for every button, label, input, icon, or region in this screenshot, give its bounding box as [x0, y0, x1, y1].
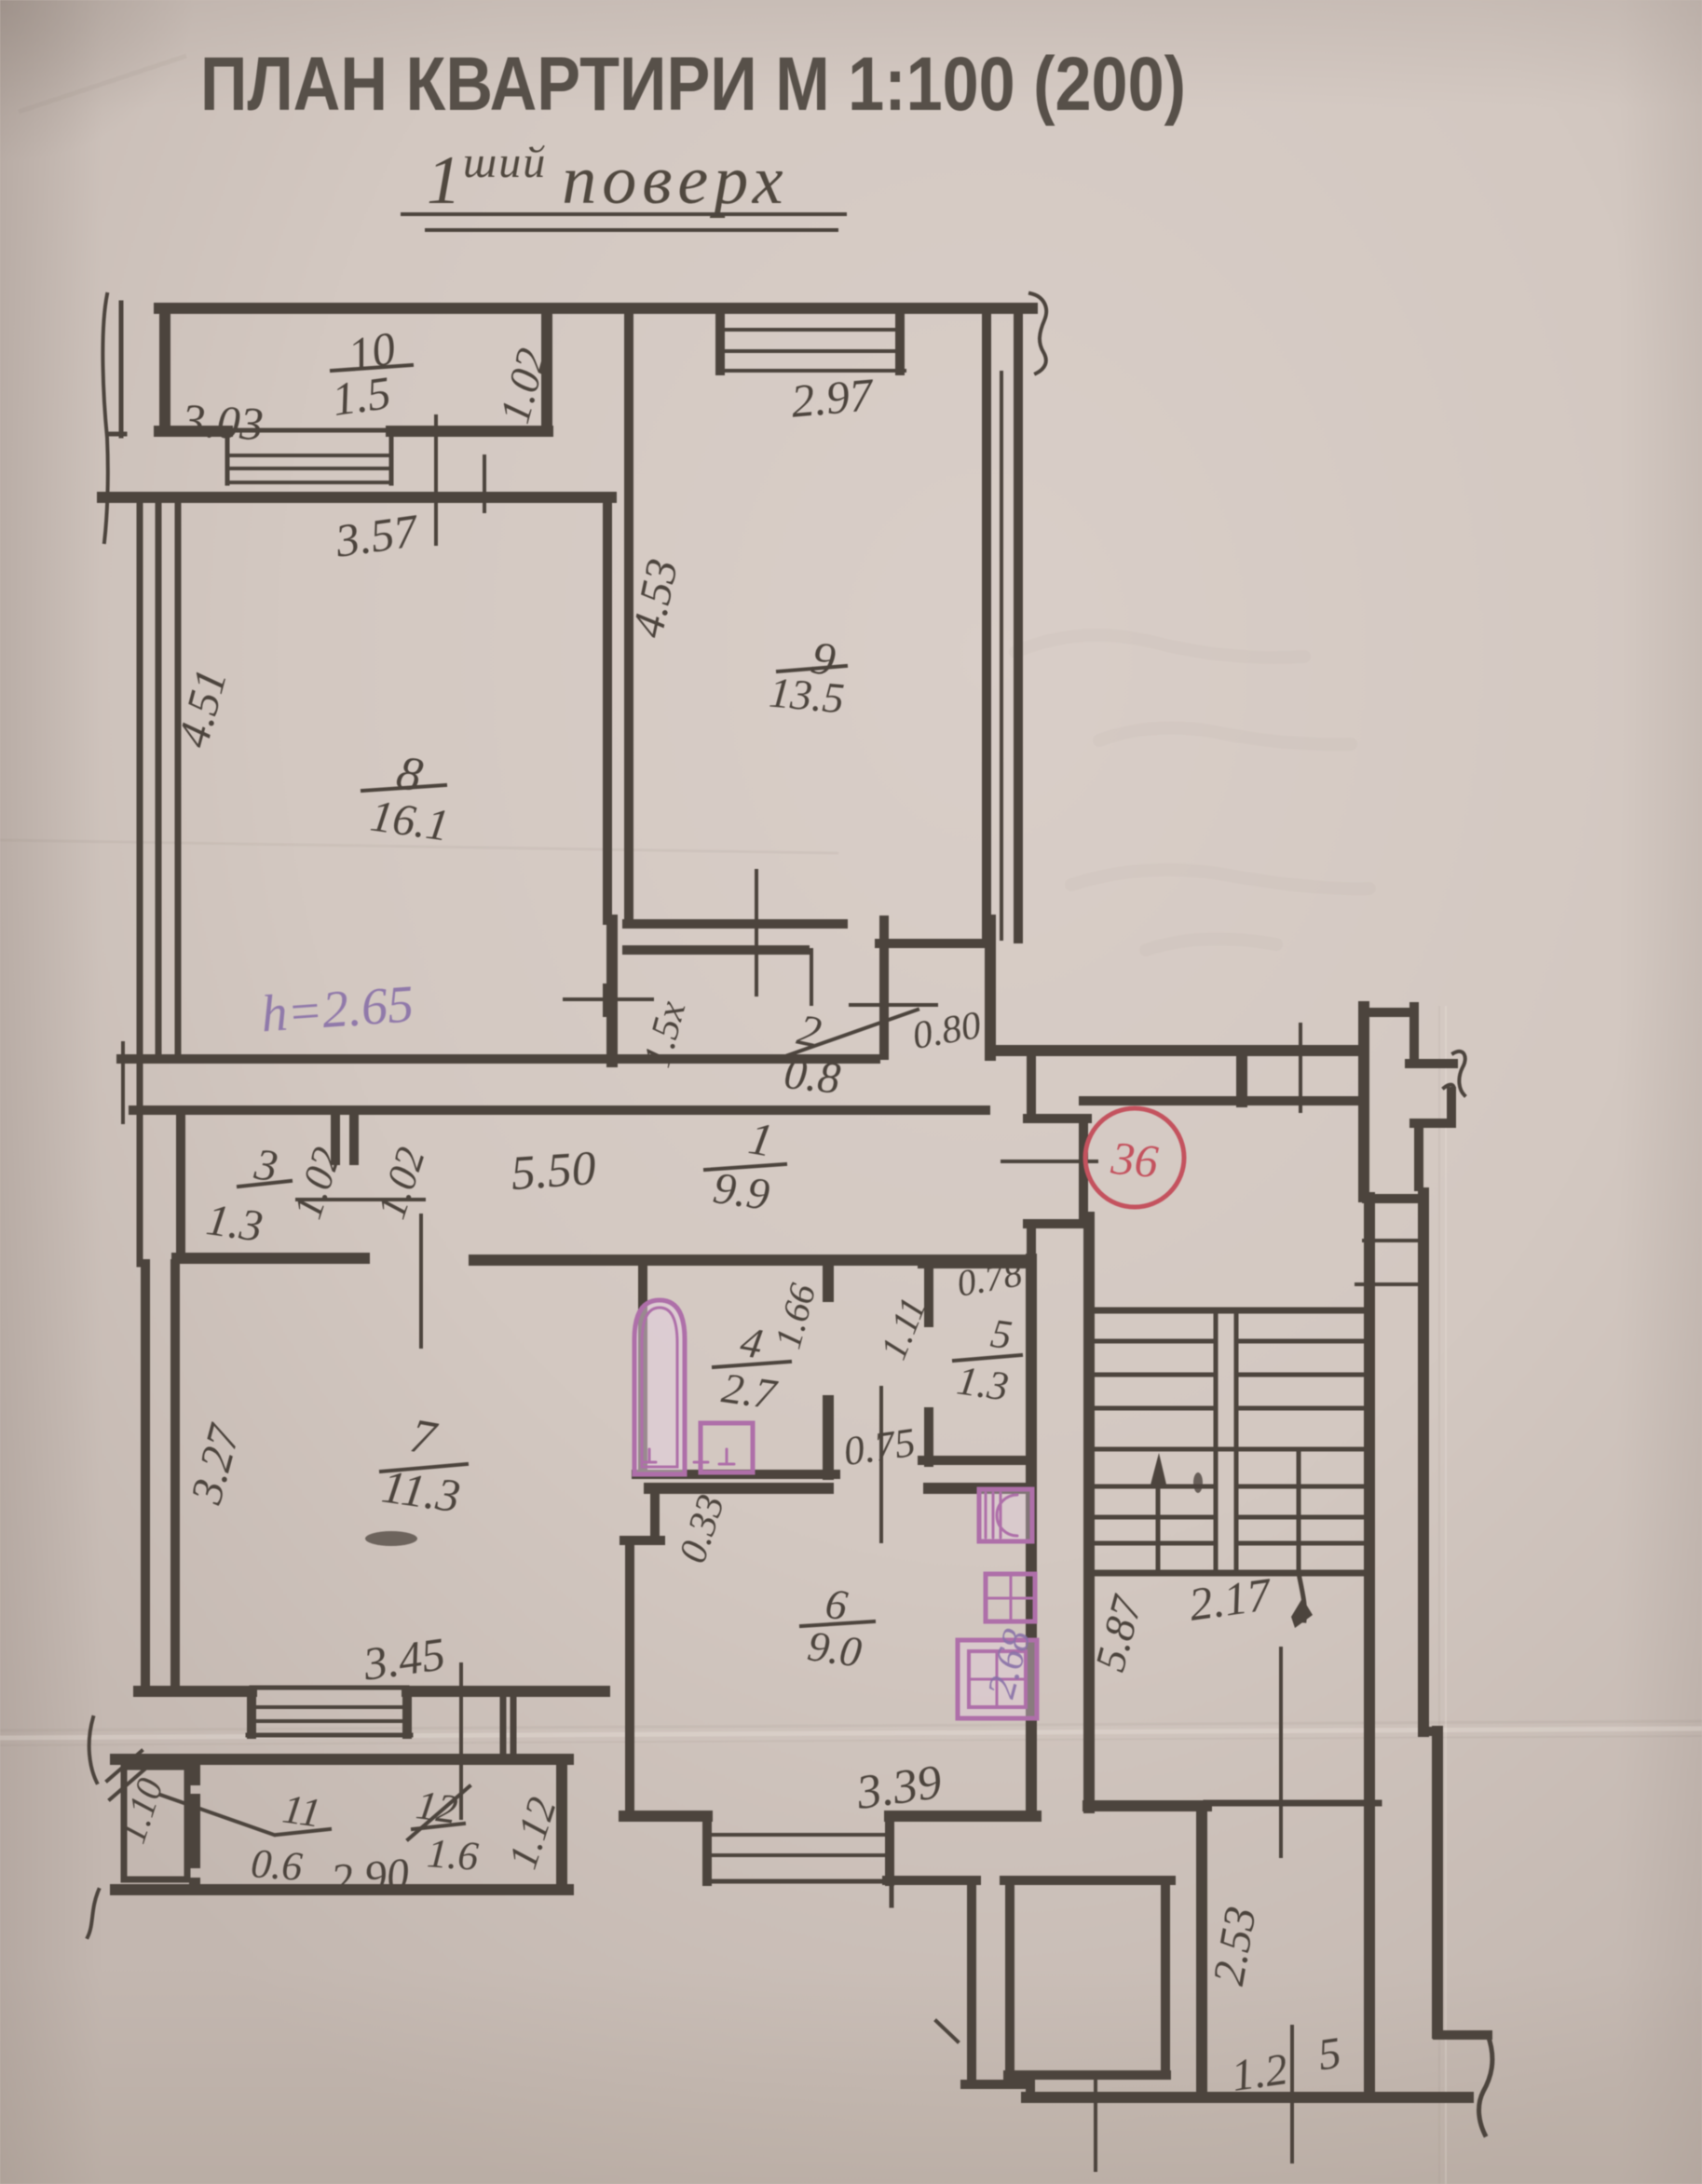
svg-text:1.2: 1.2	[1229, 2044, 1291, 2101]
svg-text:1.5: 1.5	[329, 366, 394, 426]
svg-text:12: 12	[414, 1782, 460, 1833]
svg-text:9.0: 9.0	[805, 1621, 865, 1676]
svg-text:9.9: 9.9	[710, 1163, 772, 1220]
svg-text:36: 36	[1109, 1132, 1161, 1187]
svg-text:1.3: 1.3	[954, 1357, 1011, 1409]
svg-text:ПЛАН КВАРТИРИ М 1:100 (200): ПЛАН КВАРТИРИ М 1:100 (200)	[200, 42, 1186, 127]
svg-text:1.3: 1.3	[203, 1195, 266, 1252]
svg-text:3.03: 3.03	[180, 394, 265, 451]
svg-text:h=2.65: h=2.65	[259, 975, 415, 1043]
svg-text:1.6: 1.6	[426, 1830, 480, 1879]
svg-text:11.3: 11.3	[379, 1459, 464, 1522]
svg-text:0.8: 0.8	[782, 1049, 842, 1104]
svg-text:11: 11	[279, 1785, 323, 1836]
svg-text:5.50: 5.50	[510, 1142, 598, 1201]
svg-text:0.6: 0.6	[250, 1840, 304, 1890]
svg-text:2.97: 2.97	[789, 368, 877, 427]
svg-text:2.7: 2.7	[719, 1363, 781, 1418]
svg-text:2.90: 2.90	[329, 1849, 411, 1905]
svg-text:13.5: 13.5	[768, 669, 847, 723]
